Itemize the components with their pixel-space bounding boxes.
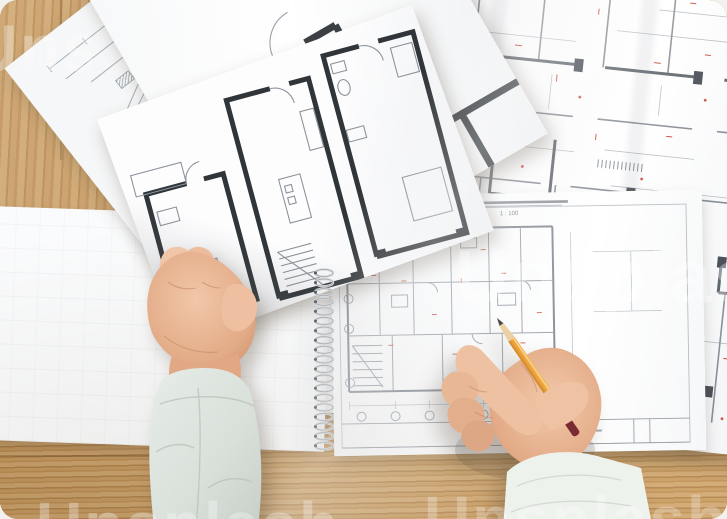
- pencil-wood-cone: [498, 322, 515, 341]
- drawing-scale-label: 1 : 100: [500, 211, 519, 217]
- left-hand: [138, 238, 268, 519]
- left-sleeve: [149, 368, 261, 519]
- right-hand: [425, 300, 665, 519]
- photo-architect-workspace: 1 : 100: [0, 0, 727, 519]
- right-sleeve: [503, 452, 653, 519]
- photo-frame: 1 : 100: [0, 0, 727, 519]
- spiral-binding: [311, 268, 337, 454]
